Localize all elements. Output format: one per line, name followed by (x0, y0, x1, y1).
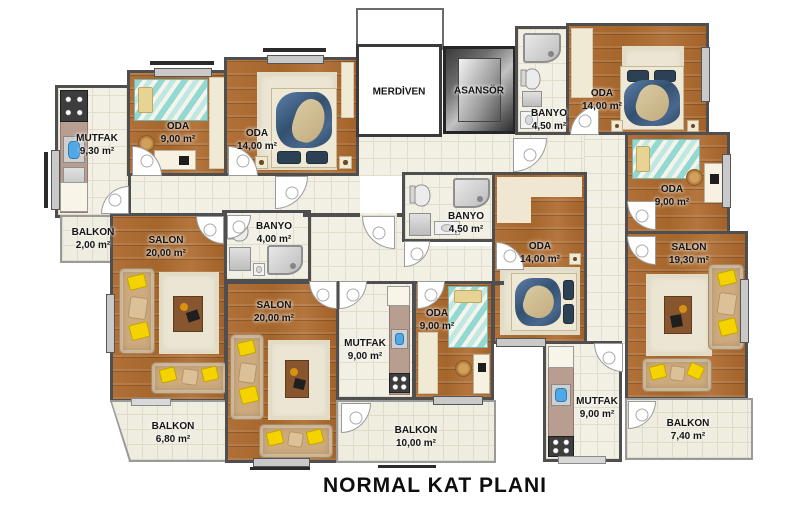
dimension-mark (44, 152, 48, 208)
window (496, 338, 546, 347)
toilet (525, 69, 541, 90)
sofa (119, 268, 155, 354)
room-label-mutfak-b: MUTFAK9,00 m² (344, 337, 386, 363)
room-label-mutfak-c: MUTFAK9,00 m² (576, 395, 618, 421)
dimension-mark (263, 48, 326, 52)
washing-machine (522, 91, 542, 107)
room-label-salon-c: SALON19,30 m² (669, 241, 709, 267)
window (51, 150, 60, 210)
kitchen-sink (551, 384, 571, 406)
nightstand (687, 120, 699, 132)
table-decor (186, 309, 201, 322)
washing-machine (409, 213, 431, 236)
window (154, 68, 212, 77)
stove (60, 90, 88, 122)
wall (397, 213, 405, 217)
toilet (414, 185, 431, 207)
coffee-table (664, 296, 692, 334)
shower (267, 245, 303, 275)
room-label-oda14-a: ODA14,00 m² (237, 127, 277, 153)
sofa-cushion (128, 296, 149, 320)
plant (180, 303, 188, 311)
room-label-salon-a: SALON20,00 m² (146, 234, 186, 260)
single-bed (134, 79, 208, 121)
desk-chair (455, 360, 472, 377)
table-decor (670, 314, 683, 328)
laptop (710, 174, 719, 184)
room-label-balkon10: BALKON10,00 m² (395, 424, 438, 450)
wall (494, 281, 504, 285)
room-label-oda9-b: ODA9,00 m² (420, 307, 454, 333)
coffee-table (173, 296, 203, 332)
room-label-oda14-c: ODA14,00 m² (582, 87, 622, 113)
accent-pillow (128, 321, 150, 341)
accent-pillow (127, 273, 148, 291)
fridge (387, 286, 410, 306)
room-label-oda9-c: ODA9,00 m² (655, 183, 689, 209)
accent-pillow (266, 429, 285, 446)
fridge (548, 346, 574, 368)
room-label-salon-b: SALON20,00 m² (254, 299, 294, 325)
accent-pillow (306, 428, 325, 445)
sofa (151, 362, 227, 394)
dimension-mark (150, 61, 214, 65)
sofa (708, 264, 744, 350)
wardrobe (209, 77, 225, 169)
shower (453, 178, 490, 208)
coffee-table (285, 360, 309, 398)
accent-pillow (238, 385, 259, 405)
room-label-banyo45-c: BANYO4,50 m² (531, 107, 567, 133)
bed-pillow (563, 280, 574, 300)
bed-pillow (454, 290, 482, 303)
table-decor (293, 378, 306, 390)
room-label-asansor: ASANSÖR (454, 85, 504, 98)
dimension-mark (250, 467, 310, 470)
accent-pillow (686, 362, 705, 381)
double-bed (511, 273, 577, 331)
bed-pillow (138, 87, 153, 113)
accent-pillow (237, 339, 257, 357)
sofa-cushion (717, 292, 738, 316)
desk (473, 354, 490, 394)
window (253, 458, 310, 467)
kitchen-sink (391, 329, 408, 349)
hallway-common (356, 134, 516, 176)
room-label-balkon2: BALKON2,00 m² (72, 226, 115, 252)
wardrobe (418, 332, 438, 394)
closet-area (497, 177, 531, 223)
dimension-mark (378, 465, 436, 468)
room-label-oda9-a: ODA9,00 m² (161, 120, 195, 146)
nightstand (255, 156, 268, 169)
shower (523, 33, 561, 63)
accent-pillow (649, 363, 668, 380)
bed-pillow (277, 151, 301, 164)
accent-pillow (717, 269, 738, 287)
bed-pillow (563, 304, 574, 324)
accent-pillow (717, 317, 738, 337)
room-label-balkon68: BALKON6,80 m² (152, 420, 195, 446)
room-label-mutfak-a: MUTFAK9,30 m² (76, 132, 118, 158)
accent-pillow (159, 366, 178, 383)
sofa (642, 358, 712, 392)
wall (303, 213, 360, 217)
laptop (478, 363, 486, 372)
room-label-banyo4-a: BANYO4,00 m² (256, 220, 292, 246)
window (106, 294, 115, 353)
window (740, 279, 749, 343)
window (701, 47, 710, 102)
room-label-banyo45-b: BANYO4,50 m² (448, 210, 484, 236)
plan-title: NORMAL KAT PLANI (70, 474, 800, 498)
bathroom-sink (253, 263, 265, 276)
nightstand (611, 120, 623, 132)
window (722, 154, 731, 208)
sofa-cushion (669, 365, 686, 382)
double-bed (620, 66, 684, 130)
balcony-diagonal-rail (110, 402, 132, 463)
hallway-apartment-c-corridor (584, 131, 627, 344)
washing-machine (229, 247, 251, 271)
stove (389, 373, 410, 393)
bed-pillow (636, 146, 650, 172)
sofa-cushion (287, 431, 304, 448)
balcony-threshold (131, 398, 171, 406)
window (267, 55, 324, 64)
stove (548, 436, 574, 457)
nightstand (339, 156, 352, 169)
floor-plan: MUTFAK9,30 m² ODA9,00 m² ODA14,00 m² BAL… (0, 0, 800, 505)
room-label-oda14-b: ODA14,00 m² (520, 240, 560, 266)
sofa (259, 424, 333, 458)
accent-pillow (201, 365, 220, 382)
plant (290, 368, 298, 376)
nightstand (569, 253, 581, 265)
sofa-cushion (238, 362, 258, 384)
room-label-balkon74: BALKON7,40 m² (667, 417, 710, 443)
sofa-cushion (181, 368, 199, 386)
wardrobe (341, 62, 354, 118)
laptop (179, 156, 189, 165)
desk (704, 163, 724, 203)
plant (679, 305, 687, 313)
fridge (60, 182, 88, 212)
bed-pillow (306, 151, 328, 164)
room-label-merdiven: MERDİVEN (373, 86, 426, 99)
balcony-threshold (558, 456, 606, 464)
double-bed (271, 88, 337, 168)
window (433, 396, 483, 405)
sofa (230, 334, 264, 420)
